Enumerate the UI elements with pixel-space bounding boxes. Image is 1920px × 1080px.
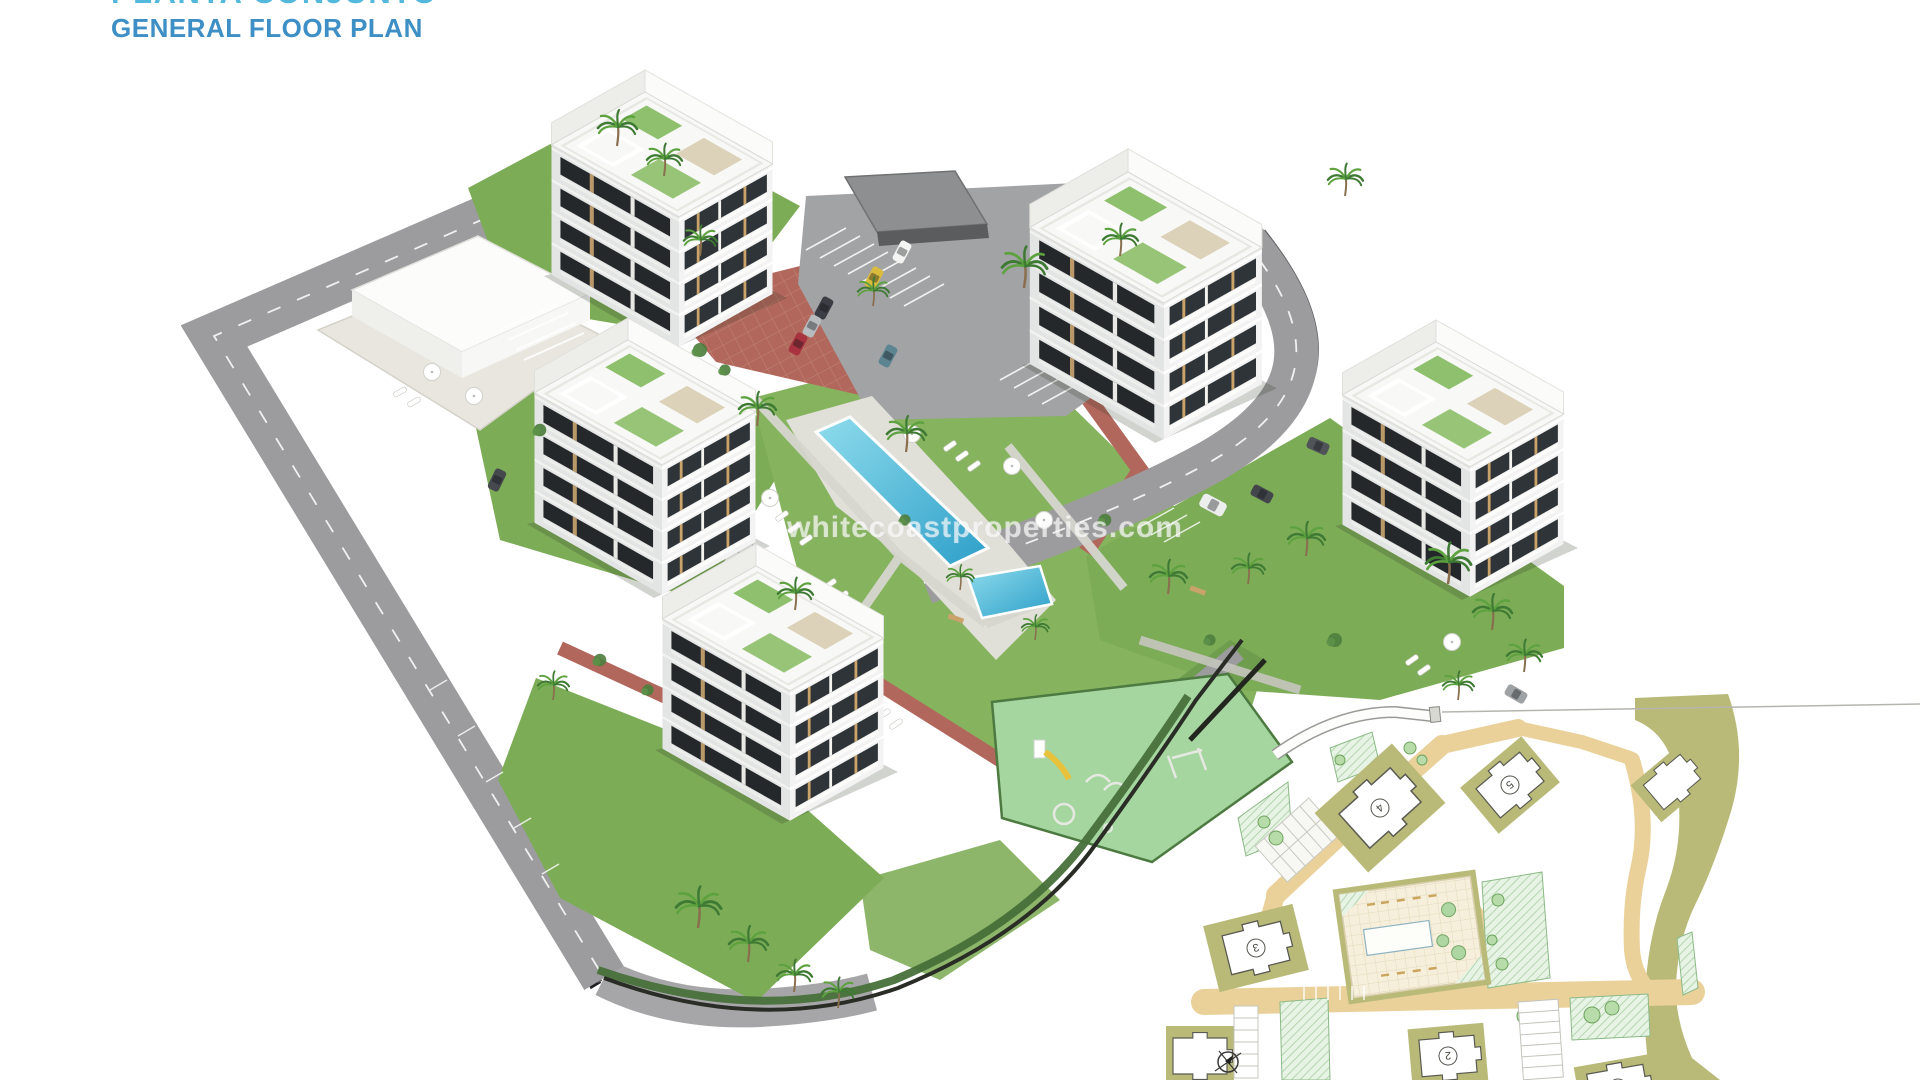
slide-tower	[1034, 740, 1045, 758]
site-plan-2d: 4 5 3 2	[1166, 694, 1920, 1080]
page: 4 5 3 2	[0, 0, 1920, 1080]
plan-amenity-area	[1333, 870, 1492, 1005]
plan-building-2-number: 2	[1444, 1049, 1451, 1061]
masterplan-illustration: 4 5 3 2	[0, 0, 1920, 1080]
